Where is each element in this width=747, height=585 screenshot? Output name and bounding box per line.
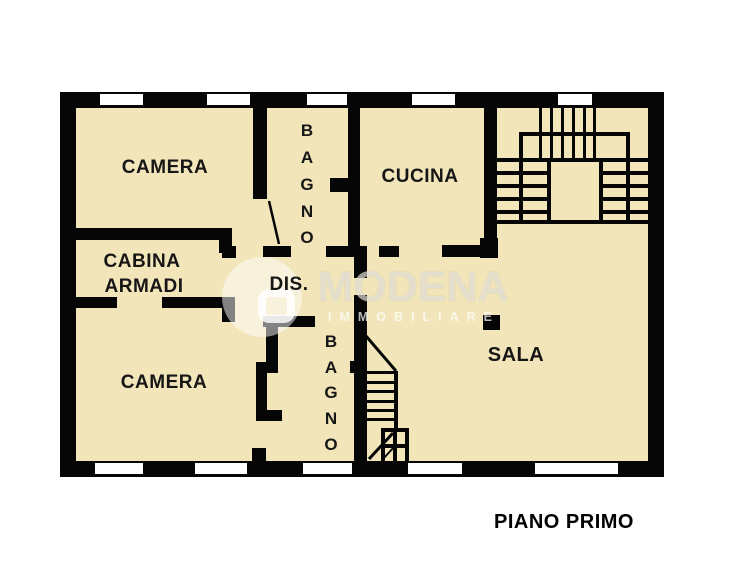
room-label-dis: DIS.	[259, 275, 319, 295]
floor-title: PIANO PRIMO	[462, 511, 666, 534]
door-hinge-block	[350, 361, 362, 373]
watermark-tagline: IMMOBILIARE	[298, 310, 530, 324]
watermark-brand: MODENA	[308, 266, 518, 309]
floor-plan-page: MODENA IMMOBILIARE CAMERA B A G N O CUCI…	[0, 0, 747, 585]
room-label-camera-bottom: CAMERA	[94, 373, 234, 393]
room-label-cucina: CUCINA	[350, 167, 490, 187]
room-label-cabina: CABINA	[72, 252, 212, 272]
room-label-sala: SALA	[456, 345, 576, 366]
room-label-armadi: ARMADI	[74, 277, 214, 297]
room-label-camera-top: CAMERA	[95, 158, 235, 178]
